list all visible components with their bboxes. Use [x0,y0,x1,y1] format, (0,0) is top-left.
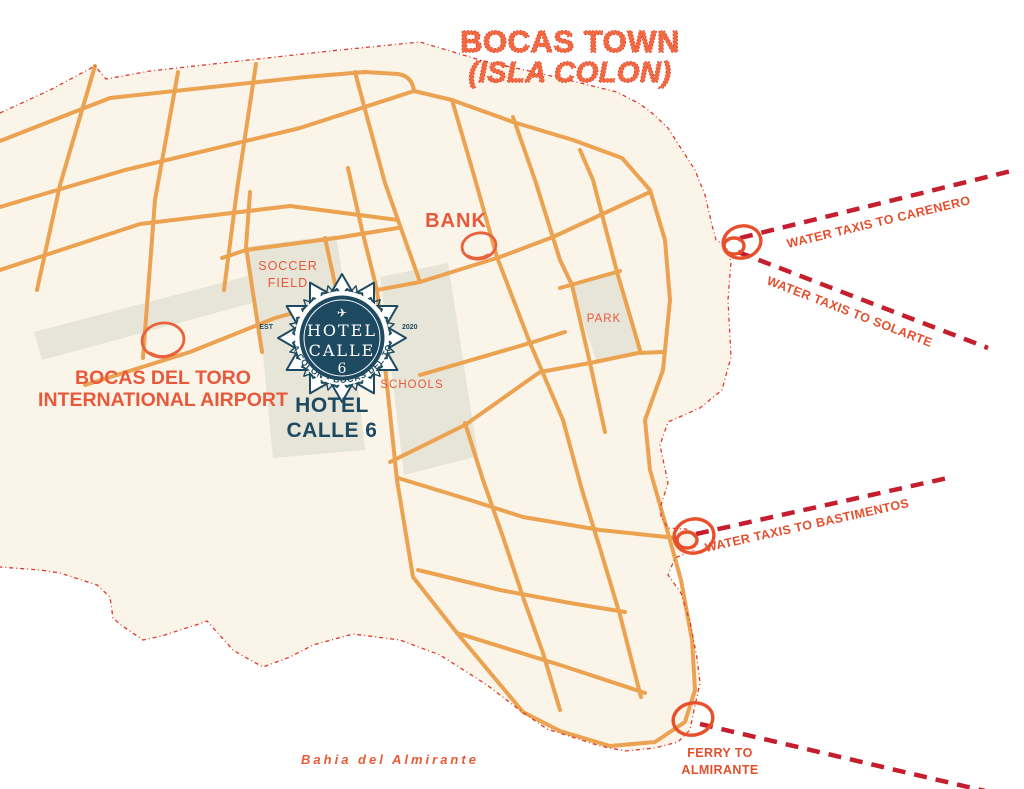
map-subtitle: (ISLA COLON) [468,57,671,89]
carenero-solarte-dock-inner [724,238,744,254]
route-solarte-line [738,252,988,348]
bocas-town-map: BOCAS TOWN (ISLA COLON) BANK SOCCER FIEL… [0,0,1024,789]
hotel-calle6-label-1: HOTEL [295,394,369,417]
bank-label: BANK [425,210,487,232]
airport-label-2: INTERNATIONAL AIRPORT [38,389,288,411]
map-title: BOCAS TOWN [460,24,680,59]
logo-est-text: EST [259,324,273,331]
soccer-field-label-2: FIELD [268,276,308,290]
water-name-label: Bahia del Almirante [301,752,479,767]
logo-number-text: 6 [338,361,347,377]
route-solarte-label: WATER TAXIS TO SOLARTE [765,274,934,350]
water-routes [696,170,1015,789]
park-label: PARK [587,313,621,325]
logo-hotel-text: HOTEL [307,321,377,340]
schools-label: SCHOOLS [380,379,443,391]
route-ferry-label-2: ALMIRANTE [681,763,758,777]
airport-label-1: BOCAS DEL TORO [75,367,251,389]
hotel-calle6-label-2: CALLE 6 [286,419,377,442]
route-ferry-label-1: FERRY TO [687,746,752,760]
soccer-field-label-1: SOCCER [258,259,317,273]
logo-plane-icon: ✈ [337,306,347,320]
logo-year-text: 2020 [402,324,418,331]
route-bastimentos-label: WATER TAXIS TO BASTIMENTOS [704,496,911,555]
logo-calle-text: CALLE [309,341,376,360]
